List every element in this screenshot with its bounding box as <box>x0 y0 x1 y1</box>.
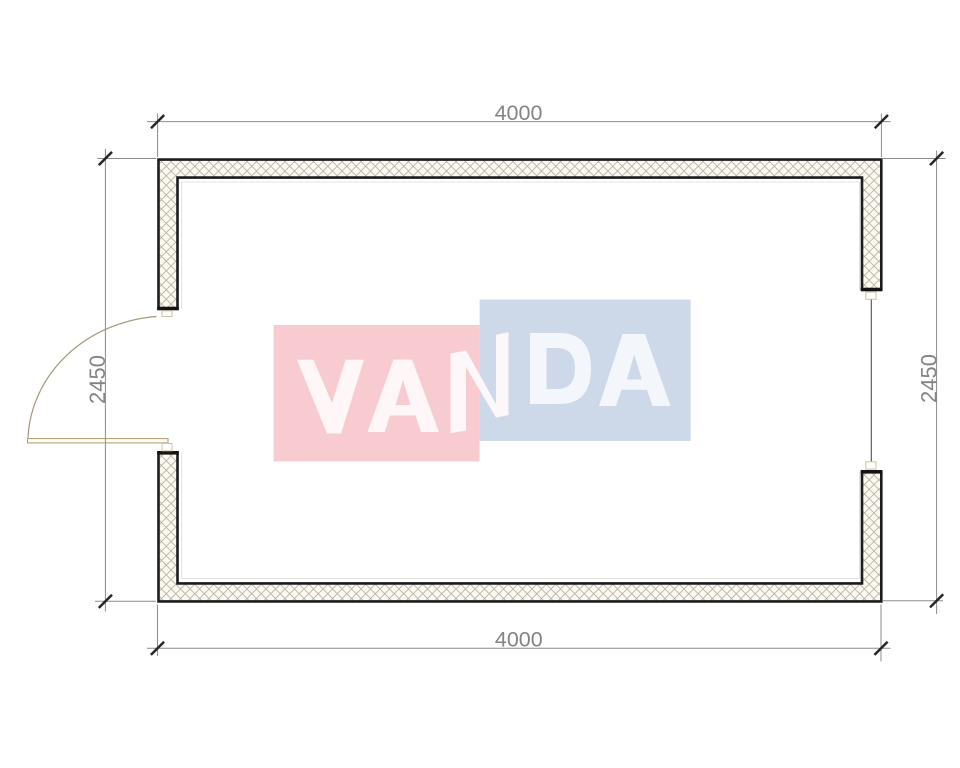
svg-text:2450: 2450 <box>85 355 110 404</box>
svg-text:4000: 4000 <box>495 101 543 125</box>
svg-text:4000: 4000 <box>495 628 543 652</box>
svg-text:2450: 2450 <box>917 354 942 403</box>
